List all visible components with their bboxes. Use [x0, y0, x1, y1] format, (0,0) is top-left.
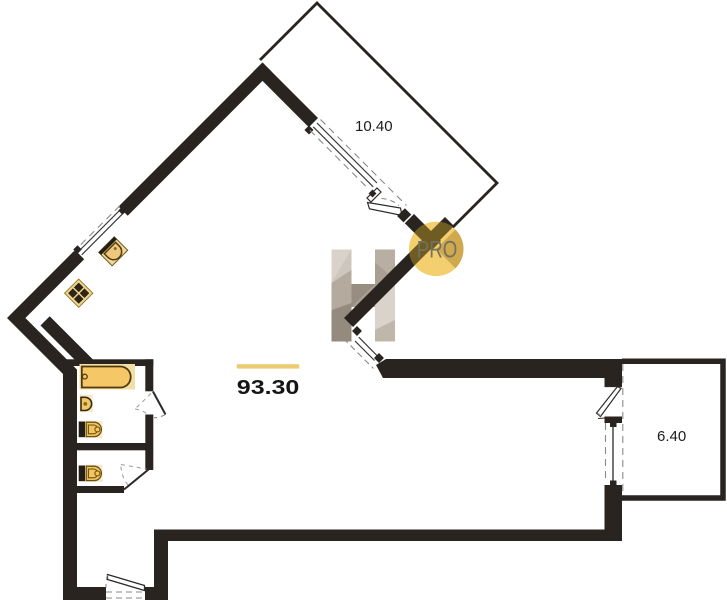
svg-text:10.40: 10.40 — [355, 118, 393, 135]
svg-text:93.30: 93.30 — [237, 376, 300, 398]
svg-text:PRO: PRO — [417, 236, 458, 263]
svg-text:6.40: 6.40 — [657, 428, 686, 445]
